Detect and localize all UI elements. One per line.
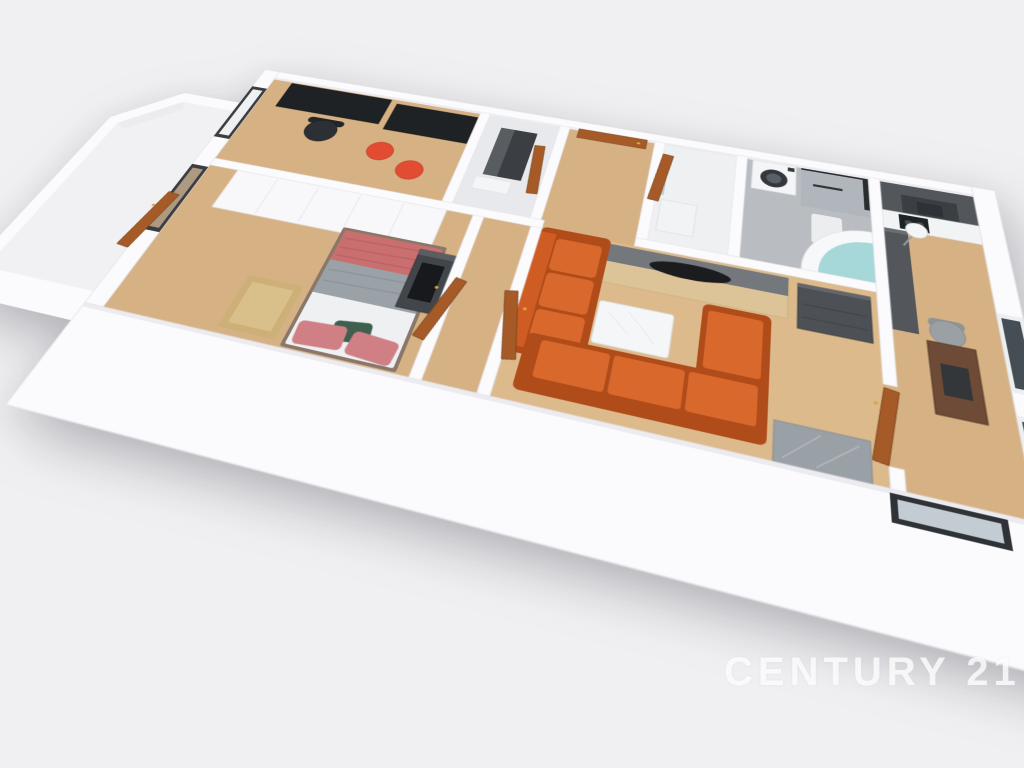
- floor-plan-svg: [0, 48, 1024, 725]
- wall-living-kitchen-stub: [889, 466, 906, 492]
- century21-watermark: CENTURY 21: [724, 650, 1024, 695]
- apartment-3d-plan: [0, 48, 1024, 725]
- render-canvas: CENTURY 21: [0, 0, 1024, 768]
- washbasin-cabinet: [656, 199, 697, 237]
